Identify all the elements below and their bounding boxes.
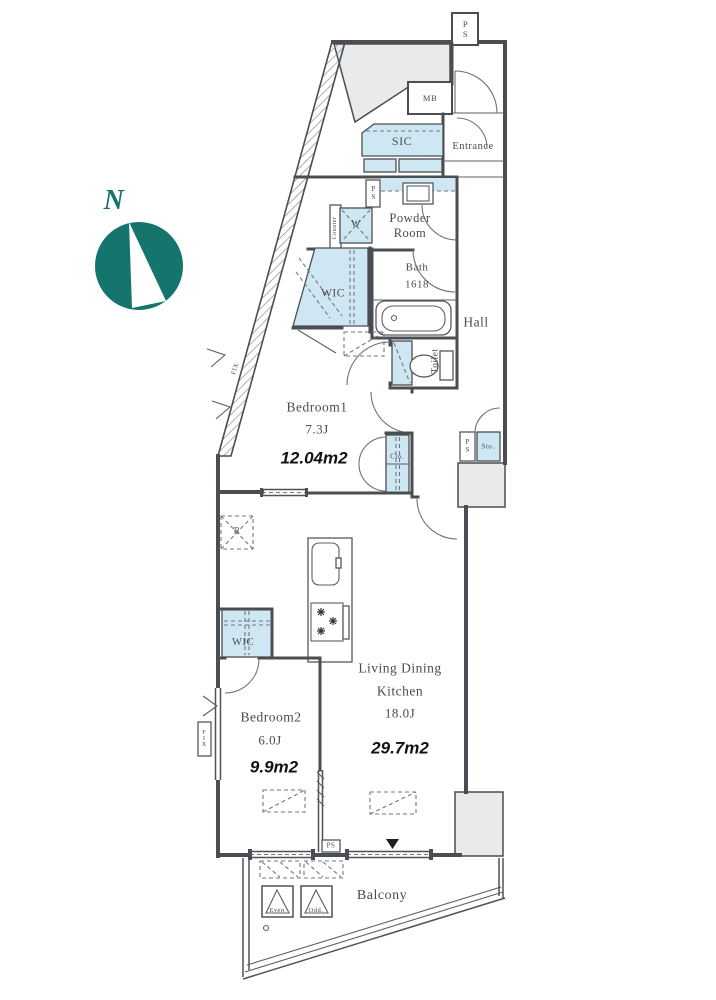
washer-label: W bbox=[351, 220, 360, 230]
shoe-cabinet bbox=[399, 159, 442, 172]
ldk-tatami-label: 18.0J bbox=[385, 707, 415, 720]
bedroom1-area-label: 12.04m2 bbox=[280, 450, 347, 467]
ps-top-label: PS bbox=[461, 19, 470, 39]
entrance-door-arc bbox=[455, 71, 497, 113]
powder-room-label-2: Room bbox=[394, 227, 427, 240]
bedroom2-tatami-label: 6.0J bbox=[258, 734, 281, 747]
sic-label: SIC bbox=[392, 135, 412, 147]
wic-south-label: WIC bbox=[232, 638, 254, 649]
compass bbox=[95, 222, 183, 310]
ldk-door-arc bbox=[417, 499, 457, 539]
shoe-cabinet bbox=[364, 159, 396, 172]
hall-label: Hall bbox=[463, 315, 488, 329]
bath-label: Bath bbox=[406, 263, 429, 274]
ps-powder-label: PS bbox=[370, 185, 377, 201]
bedroom2-door-arc bbox=[225, 659, 259, 693]
powder-room-label-1: Powder bbox=[389, 212, 430, 225]
closet-label: Clo. bbox=[390, 454, 404, 461]
ldk-label-2: Kitchen bbox=[377, 684, 423, 698]
hatch-odd-label: Odd. bbox=[309, 908, 324, 915]
counter-label: Counter bbox=[332, 217, 338, 240]
north-label: N bbox=[104, 187, 125, 215]
floor-plan: N PS MB SIC Entrance PS Powder Room W Co… bbox=[0, 0, 716, 1000]
hatch-even-label: Even bbox=[269, 908, 284, 915]
ldk-label-1: Living Dining bbox=[358, 661, 441, 675]
bedroom2-label: Bedroom2 bbox=[241, 710, 302, 724]
toilet-tank bbox=[440, 351, 453, 380]
access-marker bbox=[386, 839, 399, 849]
balcony-area bbox=[243, 858, 505, 979]
wic-north-area bbox=[293, 248, 370, 353]
fridge-label: R bbox=[234, 527, 241, 537]
bedroom1-door-arc bbox=[371, 392, 412, 433]
ldk-area-label: 29.7m2 bbox=[371, 740, 429, 757]
kitchen-island bbox=[308, 538, 352, 662]
floor-plan-drawing bbox=[0, 0, 716, 1000]
fix-left-label: FIX bbox=[201, 730, 207, 748]
bedroom1-label: Bedroom1 bbox=[287, 400, 348, 414]
bedroom1-tatami-label: 7.3J bbox=[305, 423, 328, 436]
closet-bifold-arcs bbox=[359, 437, 386, 491]
fix-window-markers bbox=[198, 349, 230, 780]
toilet-label: Toilet bbox=[431, 348, 441, 373]
storage-door-arc bbox=[475, 408, 500, 433]
ps-hall-label: PS bbox=[464, 438, 471, 454]
wic-south-floor bbox=[222, 609, 272, 657]
drain bbox=[264, 926, 269, 931]
balcony-label: Balcony bbox=[357, 889, 407, 903]
ps-balcony-label: PS bbox=[327, 843, 336, 850]
meter-box-label: MB bbox=[423, 94, 437, 103]
storage-label: Sto. bbox=[481, 444, 494, 451]
wic-north-label: WIC bbox=[321, 288, 345, 300]
bath-size-label: 1618 bbox=[405, 280, 429, 291]
entrance-label: Entrance bbox=[452, 142, 493, 153]
bedroom2-area-label: 9.9m2 bbox=[250, 759, 298, 776]
